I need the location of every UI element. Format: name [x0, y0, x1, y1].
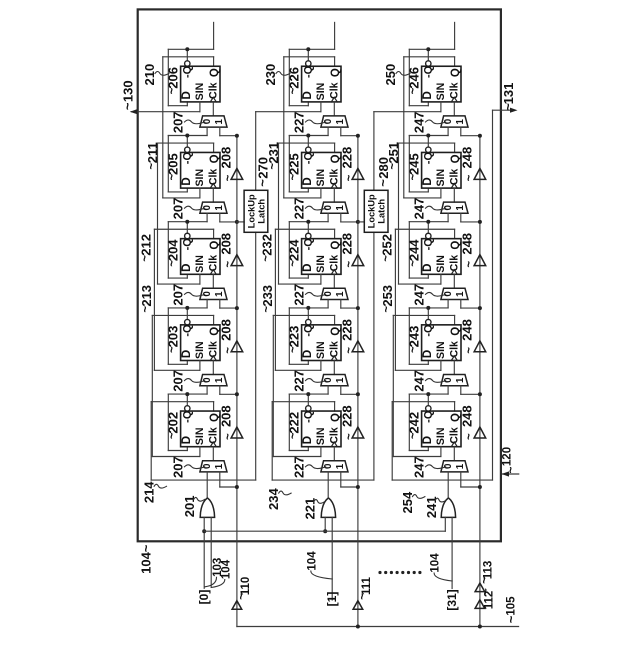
svg-text:1: 1: [455, 377, 466, 383]
svg-text:D: D: [302, 350, 314, 358]
svg-text:1: 1: [214, 291, 225, 297]
svg-text:-Q: -Q: [422, 324, 434, 337]
svg-text:D: D: [181, 350, 193, 358]
svg-text:245: 245: [407, 153, 422, 175]
svg-text:D: D: [422, 91, 434, 99]
svg-text:D: D: [422, 264, 434, 272]
svg-text:104: 104: [139, 551, 154, 573]
svg-text:~: ~: [140, 306, 152, 313]
svg-text:207: 207: [171, 198, 186, 220]
svg-text:~: ~: [223, 174, 235, 181]
svg-text:Clk: Clk: [449, 341, 461, 358]
svg-text:[1]: [1]: [325, 592, 339, 607]
svg-text:0: 0: [202, 291, 213, 297]
svg-text:~: ~: [504, 466, 518, 473]
svg-text:0: 0: [443, 463, 454, 469]
svg-text:1: 1: [455, 291, 466, 297]
svg-text:225: 225: [287, 153, 302, 175]
svg-text:227: 227: [292, 284, 307, 306]
svg-text:252: 252: [379, 234, 394, 256]
svg-text:-Q: -Q: [302, 152, 314, 165]
svg-text:~: ~: [288, 432, 300, 439]
svg-text:Latch: Latch: [377, 199, 387, 224]
svg-text:247: 247: [412, 284, 427, 306]
svg-text:~: ~: [260, 255, 272, 262]
svg-text:1: 1: [455, 463, 466, 469]
svg-text:1: 1: [214, 118, 225, 124]
svg-text:-Q: -Q: [302, 410, 314, 423]
svg-text:-Q: -Q: [181, 324, 193, 337]
svg-text:~: ~: [167, 174, 179, 181]
svg-text:Q: Q: [330, 68, 342, 77]
svg-text:113: 113: [482, 561, 494, 580]
svg-text:SIN: SIN: [194, 169, 206, 187]
svg-text:211: 211: [145, 142, 160, 163]
svg-text:Q: Q: [450, 413, 462, 422]
svg-text:206: 206: [166, 67, 181, 89]
svg-text:SIN: SIN: [435, 255, 447, 273]
svg-text:280: 280: [376, 157, 391, 179]
svg-text:Clk: Clk: [449, 169, 461, 186]
svg-text:LockUp: LockUp: [367, 194, 377, 228]
svg-text:~: ~: [223, 433, 235, 440]
svg-text:Clk: Clk: [208, 427, 220, 444]
svg-text:~: ~: [167, 432, 179, 439]
svg-text:-Q: -Q: [422, 152, 434, 165]
svg-text:Q: Q: [330, 327, 342, 336]
svg-text:[31]: [31]: [445, 589, 459, 610]
svg-text:105: 105: [506, 596, 518, 616]
svg-text:~: ~: [464, 433, 476, 440]
svg-text:0: 0: [323, 204, 334, 210]
svg-text:~: ~: [344, 347, 356, 354]
svg-text:~: ~: [408, 432, 420, 439]
svg-text:D: D: [181, 177, 193, 185]
svg-text:Clk: Clk: [329, 82, 341, 99]
svg-text:-Q: -Q: [181, 65, 193, 78]
svg-text:0: 0: [202, 118, 213, 124]
svg-text:244: 244: [407, 239, 422, 261]
svg-text:246: 246: [407, 67, 422, 89]
svg-text:Clk: Clk: [449, 82, 461, 99]
svg-text:214: 214: [142, 481, 157, 503]
svg-text:SIN: SIN: [315, 341, 327, 359]
svg-text:131: 131: [501, 83, 516, 105]
svg-text:~: ~: [167, 346, 179, 353]
svg-text:Q: Q: [209, 241, 221, 250]
svg-text:0: 0: [443, 204, 454, 210]
svg-text:222: 222: [287, 412, 302, 434]
svg-text:254: 254: [400, 491, 415, 513]
svg-text:207: 207: [171, 456, 186, 478]
svg-text:247: 247: [412, 456, 427, 478]
svg-text:~: ~: [261, 306, 273, 313]
svg-text:-Q: -Q: [181, 410, 193, 423]
svg-text:Clk: Clk: [329, 255, 341, 272]
svg-text:Clk: Clk: [208, 169, 220, 186]
svg-text:1: 1: [335, 205, 346, 211]
svg-text:~: ~: [500, 103, 515, 111]
svg-text:~: ~: [408, 87, 420, 94]
svg-text:247: 247: [412, 370, 427, 392]
svg-text:~: ~: [464, 174, 476, 181]
svg-text:226: 226: [287, 67, 302, 89]
svg-text:207: 207: [171, 284, 186, 306]
svg-text:Clk: Clk: [208, 82, 220, 99]
svg-text:204: 204: [166, 239, 181, 261]
svg-text:213: 213: [139, 285, 154, 307]
svg-text:0: 0: [202, 377, 213, 383]
svg-text:~: ~: [288, 87, 300, 94]
svg-text:D: D: [422, 436, 434, 444]
svg-text:-Q: -Q: [422, 238, 434, 251]
svg-text:-Q: -Q: [302, 238, 314, 251]
svg-text:Q: Q: [209, 68, 221, 77]
svg-text:1: 1: [214, 205, 225, 211]
svg-text:D: D: [181, 91, 193, 99]
svg-text:SIN: SIN: [435, 427, 447, 445]
svg-text:-Q: -Q: [181, 238, 193, 251]
svg-text:Clk: Clk: [208, 341, 220, 358]
svg-text:1: 1: [455, 205, 466, 211]
svg-text:1: 1: [335, 463, 346, 469]
svg-text:247: 247: [412, 111, 427, 133]
svg-text:-Q: -Q: [302, 65, 314, 78]
svg-text:D: D: [422, 350, 434, 358]
svg-text:250: 250: [383, 64, 398, 86]
svg-text:~: ~: [408, 346, 420, 353]
svg-text:230: 230: [263, 64, 278, 86]
svg-text:-Q: -Q: [422, 410, 434, 423]
svg-text:~: ~: [139, 255, 151, 262]
svg-text:227: 227: [292, 370, 307, 392]
svg-text:Clk: Clk: [208, 255, 220, 272]
svg-text:Q: Q: [450, 154, 462, 163]
svg-text:SIN: SIN: [315, 255, 327, 273]
svg-text:243: 243: [407, 326, 422, 348]
svg-text:233: 233: [260, 285, 275, 307]
svg-text:104: 104: [430, 553, 442, 573]
svg-text:120: 120: [502, 447, 514, 466]
svg-text:~: ~: [479, 577, 491, 584]
svg-text:Q: Q: [330, 154, 342, 163]
svg-text:1: 1: [214, 377, 225, 383]
svg-text:-Q: -Q: [422, 65, 434, 78]
svg-text:SIN: SIN: [435, 83, 447, 101]
svg-text:Q: Q: [450, 68, 462, 77]
svg-text:0: 0: [202, 204, 213, 210]
svg-text:SIN: SIN: [194, 83, 206, 101]
svg-text:223: 223: [287, 326, 302, 348]
svg-text:212: 212: [138, 234, 153, 256]
svg-text:1: 1: [335, 118, 346, 124]
svg-text:110: 110: [240, 577, 252, 596]
svg-text:0: 0: [443, 291, 454, 297]
svg-text:-Q: -Q: [181, 152, 193, 165]
svg-text:0: 0: [323, 463, 334, 469]
svg-text:Q: Q: [330, 413, 342, 422]
svg-text:227: 227: [292, 456, 307, 478]
svg-text:SIN: SIN: [435, 169, 447, 187]
svg-text:0: 0: [323, 291, 334, 297]
svg-text:~: ~: [167, 87, 179, 94]
svg-text:D: D: [422, 177, 434, 185]
svg-text:~: ~: [167, 260, 179, 267]
svg-text:D: D: [181, 264, 193, 272]
svg-text:0: 0: [323, 377, 334, 383]
svg-text:SIN: SIN: [194, 341, 206, 359]
svg-text:Q: Q: [450, 327, 462, 336]
svg-text:SIN: SIN: [194, 255, 206, 273]
svg-text:SIN: SIN: [315, 427, 327, 445]
svg-text:SIN: SIN: [315, 169, 327, 187]
svg-text:202: 202: [166, 412, 181, 434]
svg-text:207: 207: [171, 111, 186, 133]
svg-text:~: ~: [481, 588, 493, 595]
svg-text:201: 201: [182, 496, 197, 518]
svg-text:~: ~: [504, 615, 519, 623]
svg-text:D: D: [302, 436, 314, 444]
svg-text:~: ~: [288, 174, 300, 181]
svg-text:0: 0: [202, 463, 213, 469]
svg-text:203: 203: [166, 326, 181, 348]
svg-text:Q: Q: [209, 327, 221, 336]
svg-text:~: ~: [288, 260, 300, 267]
svg-text:~: ~: [344, 174, 356, 181]
svg-text:Clk: Clk: [329, 427, 341, 444]
svg-text:~: ~: [139, 544, 154, 552]
svg-text:-Q: -Q: [302, 324, 314, 337]
svg-text:~: ~: [120, 102, 135, 110]
svg-text:Clk: Clk: [449, 255, 461, 272]
svg-text:Clk: Clk: [449, 427, 461, 444]
svg-text:227: 227: [292, 111, 307, 133]
svg-text:D: D: [302, 264, 314, 272]
svg-text:224: 224: [287, 239, 302, 261]
svg-text:207: 207: [171, 370, 186, 392]
svg-text:LockUp: LockUp: [246, 194, 256, 228]
svg-text:~: ~: [288, 346, 300, 353]
svg-text:205: 205: [166, 153, 181, 175]
svg-text:~: ~: [236, 593, 248, 600]
svg-text:232: 232: [259, 234, 274, 256]
svg-text:~: ~: [146, 163, 158, 170]
svg-text:0: 0: [443, 118, 454, 124]
svg-text:~: ~: [223, 261, 235, 268]
svg-text:227: 227: [292, 198, 307, 220]
svg-text:SIN: SIN: [194, 427, 206, 445]
svg-text:~: ~: [357, 593, 369, 600]
svg-text:~: ~: [408, 174, 420, 181]
svg-text:1: 1: [335, 377, 346, 383]
svg-text:210: 210: [142, 64, 157, 86]
svg-text:SIN: SIN: [435, 341, 447, 359]
svg-text:270: 270: [256, 157, 271, 179]
svg-text:Q: Q: [450, 241, 462, 250]
svg-text:1: 1: [214, 463, 225, 469]
svg-text:Latch: Latch: [256, 199, 266, 224]
svg-text:~: ~: [380, 255, 392, 262]
svg-text:~: ~: [223, 347, 235, 354]
svg-text:241: 241: [424, 496, 439, 518]
svg-text:242: 242: [407, 412, 422, 434]
svg-text:~: ~: [375, 179, 390, 187]
svg-text:Q: Q: [209, 154, 221, 163]
svg-text:103: 103: [212, 558, 224, 577]
svg-text:D: D: [302, 177, 314, 185]
svg-text:247: 247: [412, 198, 427, 220]
svg-text:~: ~: [255, 179, 270, 187]
svg-text:~: ~: [408, 260, 420, 267]
svg-text:~: ~: [464, 261, 476, 268]
svg-text:0: 0: [323, 118, 334, 124]
svg-text:Q: Q: [330, 241, 342, 250]
svg-text:D: D: [181, 436, 193, 444]
svg-text:104: 104: [306, 551, 318, 571]
svg-text:Clk: Clk: [329, 341, 341, 358]
svg-text:D: D: [302, 91, 314, 99]
svg-text:~: ~: [344, 433, 356, 440]
svg-text:1: 1: [335, 291, 346, 297]
svg-text:234: 234: [266, 487, 281, 509]
svg-text:253: 253: [380, 285, 395, 307]
svg-text:1: 1: [455, 118, 466, 124]
svg-text:~: ~: [464, 347, 476, 354]
svg-text:Clk: Clk: [329, 169, 341, 186]
svg-text:[0]: [0]: [197, 590, 211, 605]
svg-text:Q: Q: [209, 413, 221, 422]
svg-text:SIN: SIN: [315, 83, 327, 101]
svg-text:111: 111: [361, 576, 373, 595]
svg-text:130: 130: [120, 80, 135, 102]
svg-text:221: 221: [302, 498, 317, 520]
svg-text:0: 0: [443, 377, 454, 383]
svg-text:~: ~: [344, 261, 356, 268]
svg-text:~: ~: [381, 306, 393, 313]
